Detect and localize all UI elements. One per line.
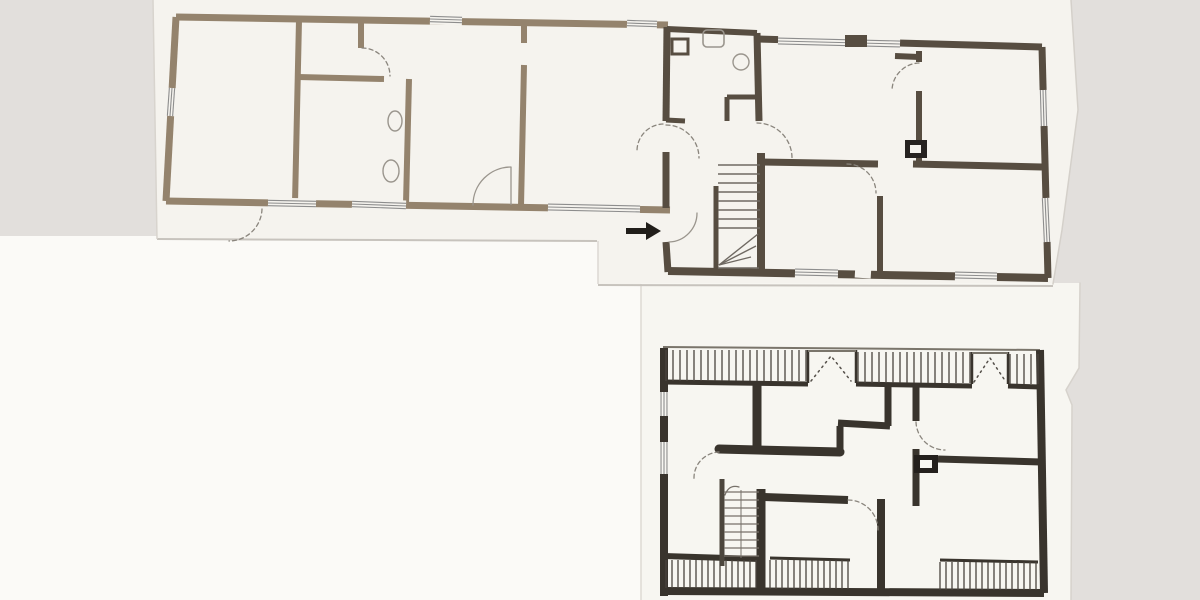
scanned-floor-plan-photo <box>0 0 1200 600</box>
chimney <box>914 455 938 473</box>
floor-plan-drawing <box>0 0 1200 600</box>
chimney <box>905 140 927 158</box>
